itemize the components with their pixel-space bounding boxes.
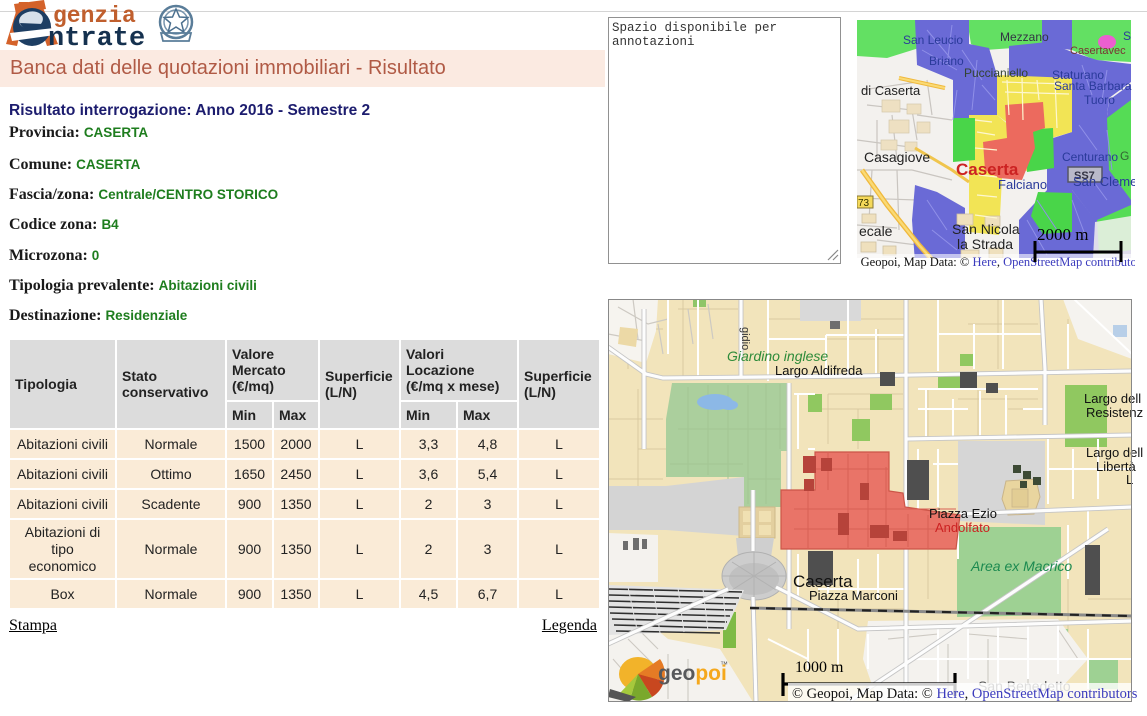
- svg-text:ntrate: ntrate: [48, 24, 145, 47]
- svg-text:gidio: gidio: [739, 327, 751, 350]
- svg-text:Santa Barbara: Santa Barbara: [1054, 79, 1132, 93]
- svg-text:1000 m: 1000 m: [795, 659, 844, 676]
- svg-text:Centurano: Centurano: [1062, 150, 1118, 164]
- svg-text:S: S: [1123, 29, 1131, 43]
- svg-text:Largo dell: Largo dell: [1086, 445, 1143, 460]
- svg-text:Piazza Marconi: Piazza Marconi: [809, 588, 898, 603]
- svg-text:2000 m: 2000 m: [1037, 225, 1088, 244]
- svg-text:Mezzano: Mezzano: [1000, 30, 1049, 44]
- svg-text:Briano: Briano: [929, 54, 964, 68]
- svg-text:Resistenz: Resistenz: [1086, 405, 1143, 420]
- svg-text:San Leucio: San Leucio: [903, 33, 963, 47]
- svg-text:© Geopoi, Map Data: © Here, Op: © Geopoi, Map Data: © Here, OpenStreetMa…: [792, 686, 1138, 702]
- svg-text:San Nicola: San Nicola: [952, 221, 1020, 237]
- svg-text:73: 73: [858, 198, 870, 209]
- svg-text:la Strada: la Strada: [957, 236, 1013, 252]
- svg-text:™: ™: [720, 660, 728, 669]
- svg-text:Puccianiello: Puccianiello: [964, 66, 1028, 80]
- svg-text:Piazza Ezio: Piazza Ezio: [929, 506, 997, 521]
- svg-text:Falciano: Falciano: [998, 177, 1047, 192]
- svg-text:G: G: [1120, 149, 1129, 163]
- svg-text:Largo dell: Largo dell: [1084, 391, 1141, 406]
- svg-text:L: L: [1126, 472, 1133, 487]
- svg-text:© Geopoi, Map Data: © Here, Op: © Geopoi, Map Data: © Here, OpenStreetMa…: [857, 255, 1135, 269]
- svg-text:Area ex Macrico: Area ex Macrico: [970, 558, 1072, 574]
- svg-text:di Caserta: di Caserta: [861, 83, 921, 98]
- svg-text:Giardino inglese: Giardino inglese: [727, 348, 828, 364]
- svg-text:geopoi: geopoi: [658, 662, 727, 685]
- svg-text:ecale: ecale: [859, 223, 893, 239]
- svg-text:Casagiove: Casagiove: [864, 149, 930, 165]
- svg-text:Andolfato: Andolfato: [935, 520, 990, 535]
- svg-text:Tuoro: Tuoro: [1084, 93, 1115, 107]
- svg-text:Casertavec: Casertavec: [1070, 45, 1126, 57]
- svg-text:San Cleme: San Cleme: [1073, 174, 1135, 189]
- svg-text:Largo Aldifreda: Largo Aldifreda: [775, 363, 863, 378]
